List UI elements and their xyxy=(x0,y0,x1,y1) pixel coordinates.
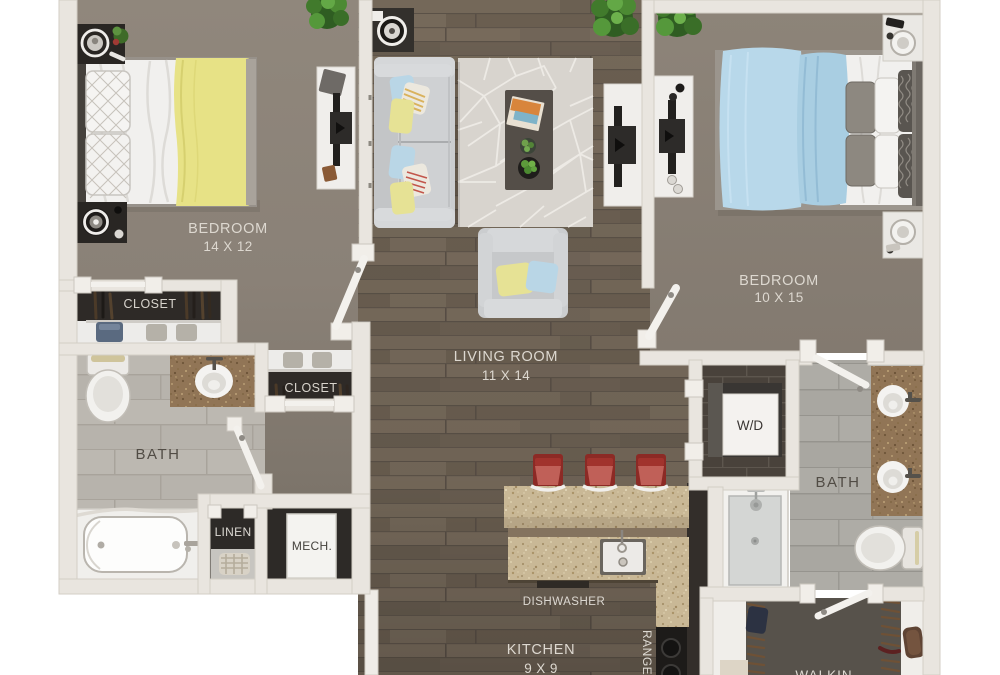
svg-text:MECH.: MECH. xyxy=(292,539,332,553)
svg-text:14 X 12: 14 X 12 xyxy=(203,239,252,254)
svg-text:9 X 9: 9 X 9 xyxy=(524,661,558,675)
svg-text:RANGE: RANGE xyxy=(640,630,654,675)
svg-text:DISHWASHER: DISHWASHER xyxy=(523,596,606,608)
svg-text:CLOSET: CLOSET xyxy=(284,381,337,395)
svg-text:10 X 15: 10 X 15 xyxy=(754,290,803,305)
svg-text:BEDROOM: BEDROOM xyxy=(739,273,819,289)
svg-text:LIVING ROOM: LIVING ROOM xyxy=(454,349,558,365)
svg-text:11 X 14: 11 X 14 xyxy=(482,368,530,383)
svg-text:BEDROOM: BEDROOM xyxy=(188,221,268,237)
svg-text:WALKIN: WALKIN xyxy=(795,668,852,675)
svg-text:W/D: W/D xyxy=(737,418,763,433)
svg-text:BATH: BATH xyxy=(136,446,181,463)
svg-text:BATH: BATH xyxy=(816,474,861,491)
svg-text:LINEN: LINEN xyxy=(215,525,252,539)
svg-text:KITCHEN: KITCHEN xyxy=(507,642,576,658)
svg-text:CLOSET: CLOSET xyxy=(123,297,176,311)
